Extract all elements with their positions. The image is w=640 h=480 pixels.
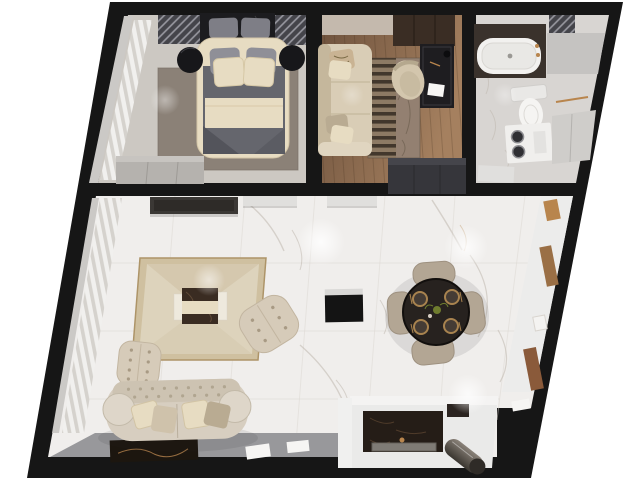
plate-3: [414, 320, 428, 334]
study-top-wall: [322, 15, 393, 35]
sofa-pillow-cream2: [330, 124, 354, 144]
desk-lamp: [444, 51, 451, 58]
tub-drain: [508, 54, 513, 59]
washer-door-2: [512, 145, 525, 158]
nightstand-right: [279, 45, 305, 71]
curved-sofa: [102, 378, 252, 442]
bathtub: [477, 38, 541, 74]
plate-2: [445, 290, 459, 304]
ceiling-light-2: [444, 225, 488, 269]
dining-table: [403, 279, 469, 345]
room-bathroom: [474, 15, 609, 183]
washing-machine-vanity: [505, 122, 554, 163]
bed-cream-band: [205, 98, 283, 128]
washer-door-1: [511, 130, 524, 143]
back-pillow-right: [241, 18, 271, 39]
bedroom-door-shadow: [243, 206, 297, 208]
low-wardrobe: [116, 156, 204, 184]
study-door-shadow: [327, 206, 377, 208]
headboard-hatch-panel-left: [158, 15, 200, 44]
sofa-pillow-4: [203, 401, 232, 430]
floor-plan-svg: [0, 0, 640, 480]
bath-hatch-panel: [549, 15, 575, 33]
art-small-frame: [533, 315, 547, 331]
tub-faucet: [535, 44, 539, 48]
bedroom-ceiling-light: [150, 85, 180, 115]
table-plant: [433, 306, 441, 314]
room-study: [318, 15, 466, 194]
study-door-leaf: [327, 196, 377, 206]
tub-handle: [536, 53, 540, 57]
nightstand-left: [177, 47, 203, 73]
bathroom-open-door: [478, 165, 515, 183]
desk-paper: [427, 83, 445, 97]
coffee-table-glass-right: [218, 292, 227, 320]
tv-console: [150, 197, 238, 217]
floor-plan-render: [0, 0, 640, 480]
kitchen-faucet: [400, 438, 405, 443]
study-ceiling-light: [340, 83, 364, 107]
sofa-arm-left: [103, 393, 136, 426]
plate-4: [444, 319, 458, 333]
coffee-table-glass-left: [174, 294, 183, 320]
back-pillow-left: [209, 17, 239, 38]
room-bedroom: [89, 13, 306, 184]
low-cabinet: [388, 158, 466, 194]
room-living: [48, 196, 573, 478]
plate-1: [413, 292, 427, 306]
ceiling-light-1: [297, 218, 345, 266]
pillow-cream-right: [243, 57, 275, 87]
ceiling-light-3: [448, 374, 488, 414]
pillow-cream-left: [213, 57, 245, 87]
double-bed: [197, 38, 289, 158]
sofa-pillow-2: [150, 405, 178, 434]
kitchen-pillar: [338, 398, 352, 468]
bathroom-ceiling-light: [493, 83, 517, 107]
sofa-pillow-cream: [328, 60, 352, 81]
ceiling-light-4: [193, 264, 225, 296]
desk: [420, 44, 454, 108]
dark-wardrobe: [393, 15, 455, 46]
kitchen-sink: [372, 443, 436, 451]
table-candle: [428, 314, 432, 318]
paper-2: [287, 440, 310, 453]
bath-gray-panel: [547, 33, 605, 74]
coffee-table-runner: [182, 301, 218, 314]
bedroom-door-leaf: [243, 196, 297, 206]
vanity-top: [533, 131, 547, 154]
floor-cabinet: [325, 289, 364, 323]
